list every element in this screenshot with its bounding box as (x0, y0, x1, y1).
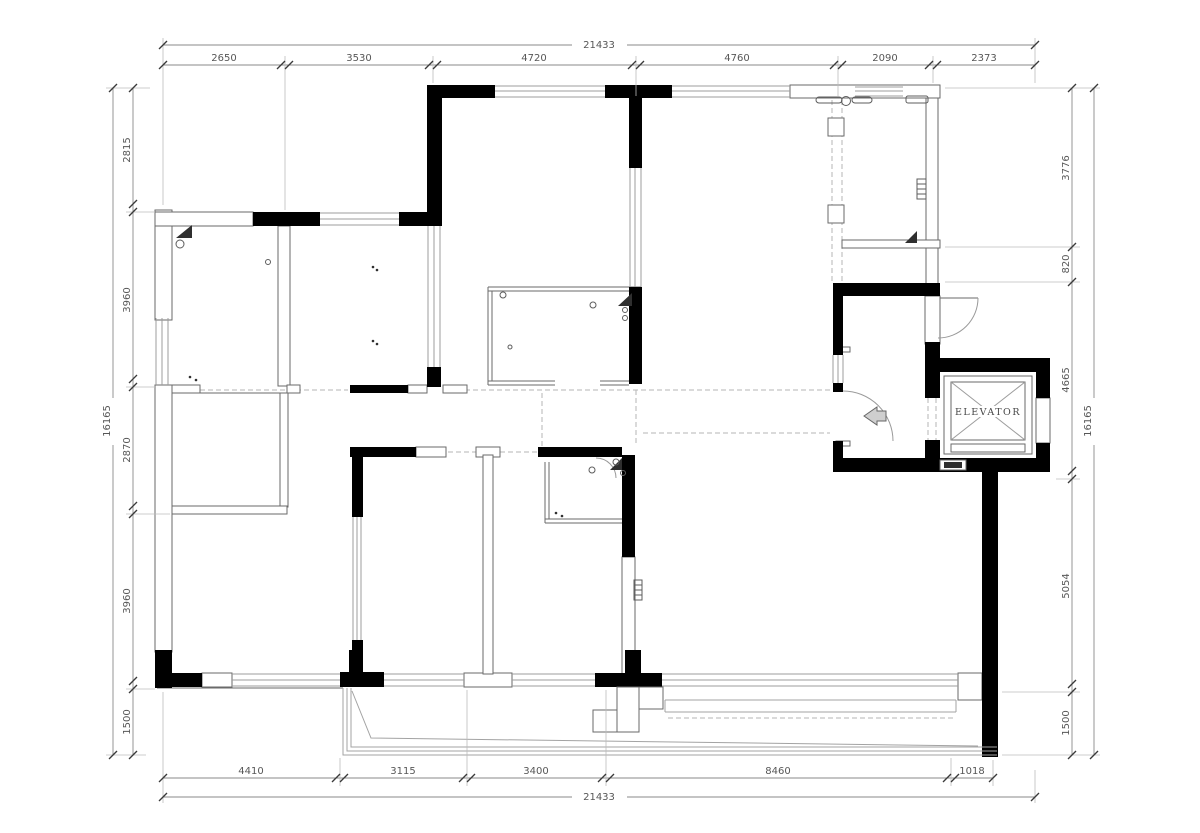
wall-segment (925, 342, 940, 398)
wall-outline (155, 212, 253, 226)
wall-segment (427, 85, 495, 98)
structural-walls (155, 85, 1050, 757)
wall-outline (828, 118, 844, 136)
wall-segment (352, 640, 363, 674)
wall-segment (595, 673, 662, 687)
wall-segment (399, 212, 442, 226)
dim-label: 4410 (238, 766, 263, 777)
wall-outline (172, 506, 287, 514)
wall-outline (925, 296, 940, 344)
dim-label: 2870 (122, 437, 133, 462)
wall-segment (938, 358, 1050, 372)
dot-marker (195, 379, 198, 382)
dim-label: 3960 (122, 287, 133, 312)
wall-outline (416, 447, 446, 457)
column-outline (639, 687, 663, 709)
wall-outline (172, 385, 200, 393)
wall-segment (352, 447, 363, 517)
wall-outline (464, 673, 512, 687)
dashed-lines (200, 100, 955, 718)
door-corner-marker (176, 225, 192, 238)
wall-segment (605, 85, 672, 98)
floor-plan-drawing: ELEVATOR (0, 0, 1200, 833)
wall-segment (157, 673, 202, 687)
wall-outline (958, 673, 982, 700)
downlight-icon (590, 302, 596, 308)
downlight-icon (623, 308, 628, 313)
door-corner-marker (618, 293, 632, 306)
wall-segment (833, 283, 843, 355)
dimension-chain-right: 3776 820 4665 5054 1500 16165 (945, 84, 1100, 759)
vent-icon (944, 462, 962, 468)
dim-label: 2815 (122, 137, 133, 162)
balcony (343, 687, 997, 755)
downlight-icon (589, 467, 595, 473)
dim-label-overall: 16165 (102, 405, 113, 437)
wall-segment (427, 85, 442, 226)
dim-label-overall: 16165 (1083, 405, 1094, 437)
dot-marker (376, 269, 379, 272)
entry-arrow-icon (864, 407, 886, 425)
outlined-walls (155, 85, 1050, 700)
dim-label: 5054 (1061, 573, 1072, 598)
dimension-chain-top: 2650 3530 4720 4760 2090 2373 21433 (159, 38, 1039, 210)
dot-marker (372, 340, 375, 343)
downlight-icon (508, 345, 512, 349)
floor-plan-canvas: ELEVATOR (0, 0, 1200, 833)
dim-label-overall: 21433 (583, 40, 615, 51)
wall-outline (483, 455, 493, 674)
wall-outline (202, 673, 232, 687)
wall-segment (350, 385, 408, 393)
elevator-shaft: ELEVATOR (940, 376, 1032, 470)
door-corner-marker (610, 458, 622, 470)
wall-outline (287, 385, 300, 393)
downlight-icon (623, 316, 628, 321)
wall-outline (926, 98, 938, 284)
dim-label-overall: 21433 (583, 792, 615, 803)
wall-outline (408, 385, 427, 393)
dim-label: 3776 (1061, 155, 1072, 180)
wall-segment (340, 672, 384, 687)
dim-label: 3400 (523, 766, 548, 777)
wall-segment (427, 367, 441, 387)
dim-label: 1500 (1061, 710, 1072, 735)
wall-outline (280, 393, 288, 507)
downlight-icon (500, 292, 506, 298)
elevator-sill-strip (951, 444, 1025, 452)
dim-label: 8460 (765, 766, 790, 777)
wall-segment (1036, 358, 1050, 398)
wall-segment (833, 383, 843, 392)
wall-outline (842, 240, 940, 248)
dim-label: 2090 (872, 53, 897, 64)
wall-outline (278, 226, 290, 386)
wall-segment (625, 650, 641, 673)
downlight-icon (266, 260, 271, 265)
dim-label: 2373 (971, 53, 996, 64)
wall-segment (925, 440, 940, 471)
dim-label: 3115 (390, 766, 415, 777)
dim-label: 4720 (521, 53, 546, 64)
dot-marker (555, 512, 558, 515)
dim-label: 4760 (724, 53, 749, 64)
wall-segment (1036, 443, 1050, 472)
wall-segment (253, 212, 320, 226)
dim-label: 4665 (1061, 367, 1072, 392)
dot-marker (376, 343, 379, 346)
door-arc (938, 298, 978, 338)
elevator-label: ELEVATOR (955, 407, 1021, 418)
wall-outline (828, 205, 844, 223)
wall-outline (443, 385, 467, 393)
wall-segment (629, 98, 642, 168)
dot-marker (372, 266, 375, 269)
dim-label: 1018 (959, 766, 984, 777)
wall-segment (350, 447, 416, 457)
wall-segment (982, 472, 998, 757)
bathroom-walls (488, 287, 641, 523)
column-outline (593, 710, 617, 732)
dim-label: 2650 (211, 53, 236, 64)
dot-marker (561, 515, 564, 518)
doors (596, 298, 978, 478)
dim-label: 3530 (346, 53, 371, 64)
wall-segment (538, 447, 622, 457)
wall-outline (155, 385, 172, 652)
column-outline (617, 687, 639, 732)
wall-outline (1036, 398, 1050, 443)
dim-label: 820 (1061, 254, 1072, 273)
downlight-icon (176, 240, 184, 248)
dim-label: 1500 (122, 709, 133, 734)
radiator-icon (917, 179, 926, 199)
dot-marker (189, 376, 192, 379)
wall-segment (833, 283, 940, 296)
dim-label: 3960 (122, 588, 133, 613)
